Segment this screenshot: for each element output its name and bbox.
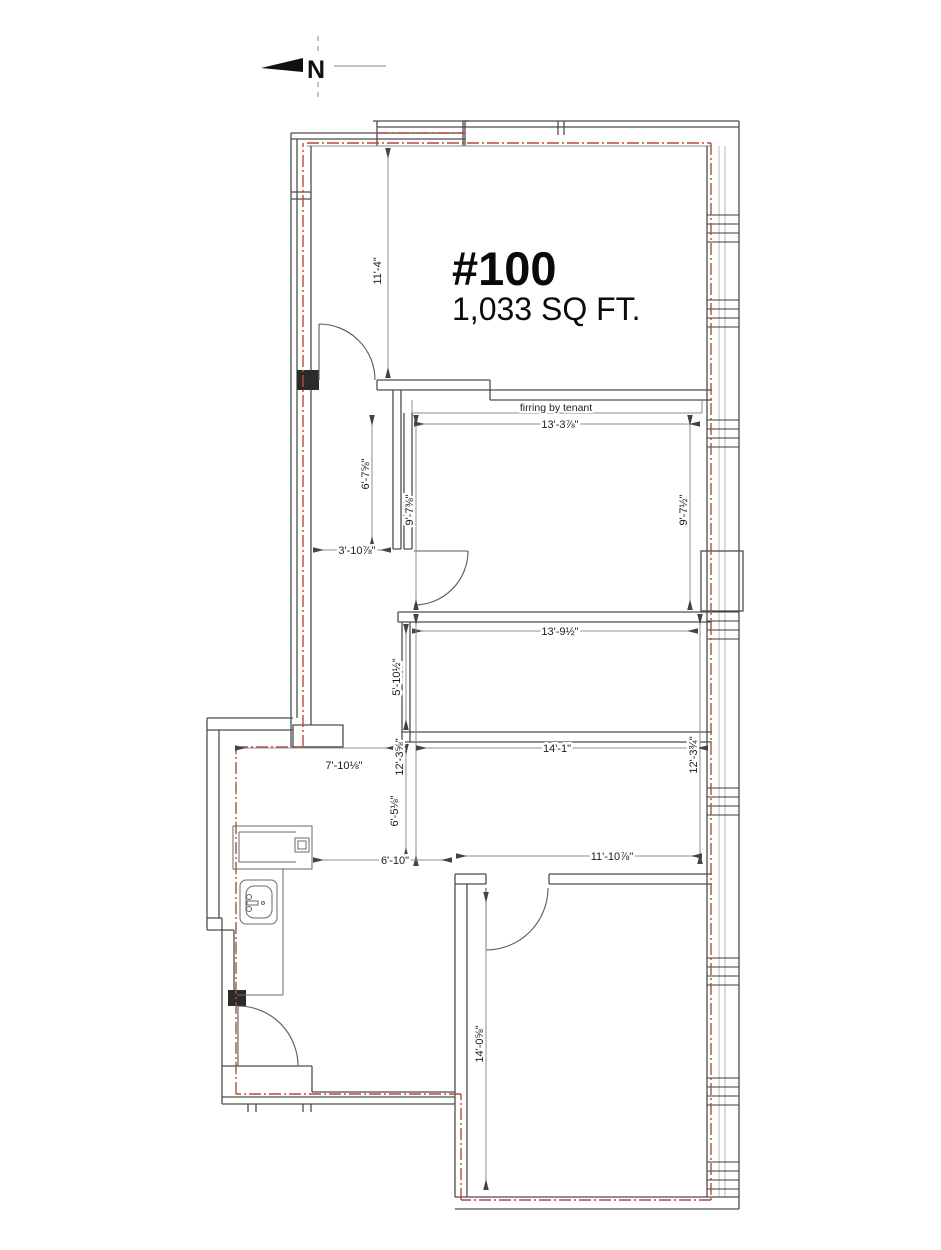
- counter-appliance-inner: [298, 841, 306, 849]
- floor-plan: N #100 1,033 SQ FT.: [0, 0, 941, 1250]
- dimension-label: 14'-1": [543, 743, 571, 755]
- firring-note: firring by tenant: [520, 402, 592, 414]
- unit-number: #100: [452, 242, 557, 295]
- dimension-label: 12'-3¾": [688, 736, 700, 773]
- door-swing-room2: [414, 551, 468, 605]
- sink-faucet: [247, 901, 258, 905]
- wall-top-left: [291, 133, 377, 139]
- wall-end-pier: [293, 725, 343, 747]
- unit-title-block: #100 1,033 SQ FT.: [452, 242, 641, 327]
- sink-handle-1: [247, 895, 252, 900]
- sink-drain: [262, 902, 265, 905]
- wall-bottom-room-north: [455, 874, 712, 884]
- north-indicator: N: [261, 36, 386, 102]
- dimension-label: 7'-10⅛": [325, 760, 362, 772]
- counter-run: [237, 869, 283, 995]
- wall-room2-west: [404, 413, 412, 549]
- door-swing-lower-left: [238, 1006, 298, 1066]
- sink-basin: [246, 886, 272, 918]
- wall-room2-south: [398, 612, 712, 622]
- window-mullions-right: [707, 215, 739, 1189]
- wall-right: [707, 121, 739, 1209]
- dimension-label: 11'-4": [372, 257, 384, 284]
- dimension-label: 3'-10⅞": [338, 545, 375, 557]
- dimension-label: 9'-7⅜": [404, 494, 416, 525]
- dimension-labels: 11'-4" firring by tenant 13'-3⅞" 6'-7⅝" …: [325, 257, 700, 1062]
- sink-handle-2: [247, 907, 252, 912]
- dimension-label: 14'-0⅝": [474, 1025, 486, 1062]
- wall-bottom-left: [222, 1066, 455, 1112]
- door-swing-bottom-room: [486, 888, 548, 950]
- dimension-label: 6'-7⅝": [360, 458, 372, 489]
- unit-area: 1,033 SQ FT.: [452, 291, 641, 327]
- interior-walls: [228, 370, 712, 1197]
- north-label: N: [307, 56, 325, 84]
- wall-corridor: [393, 390, 401, 549]
- dimension-label: 6'-10": [381, 855, 409, 867]
- dimension-label: 6'-5⅛": [389, 795, 401, 826]
- millwork: [233, 826, 312, 995]
- wall-left: [291, 133, 343, 747]
- dimension-label: 13'-3⅞": [541, 419, 578, 431]
- wall-room1-south: [377, 380, 712, 400]
- sink-icon: [240, 880, 277, 924]
- door-jamb-stub-lower-left: [228, 990, 246, 1006]
- door-jamb-stub-room1: [297, 370, 319, 390]
- wall-top-right: [463, 121, 739, 146]
- dimension-label: 13'-9½": [541, 626, 578, 638]
- dimension-label: 12'-3⅝": [394, 738, 406, 775]
- dimension-label: 9'-7½": [678, 494, 690, 525]
- door-swing-room1: [319, 324, 375, 380]
- dimension-label: 11'-10⅞": [591, 851, 634, 863]
- window-glazing-right: [719, 146, 725, 1197]
- counter-appliance: [295, 838, 309, 852]
- wall-room3-south: [402, 732, 712, 742]
- counter: [233, 826, 312, 869]
- dimension-label: 5'-10½": [391, 658, 403, 695]
- north-arrow-icon: [261, 58, 303, 72]
- wall-bottom-right: [455, 1197, 739, 1209]
